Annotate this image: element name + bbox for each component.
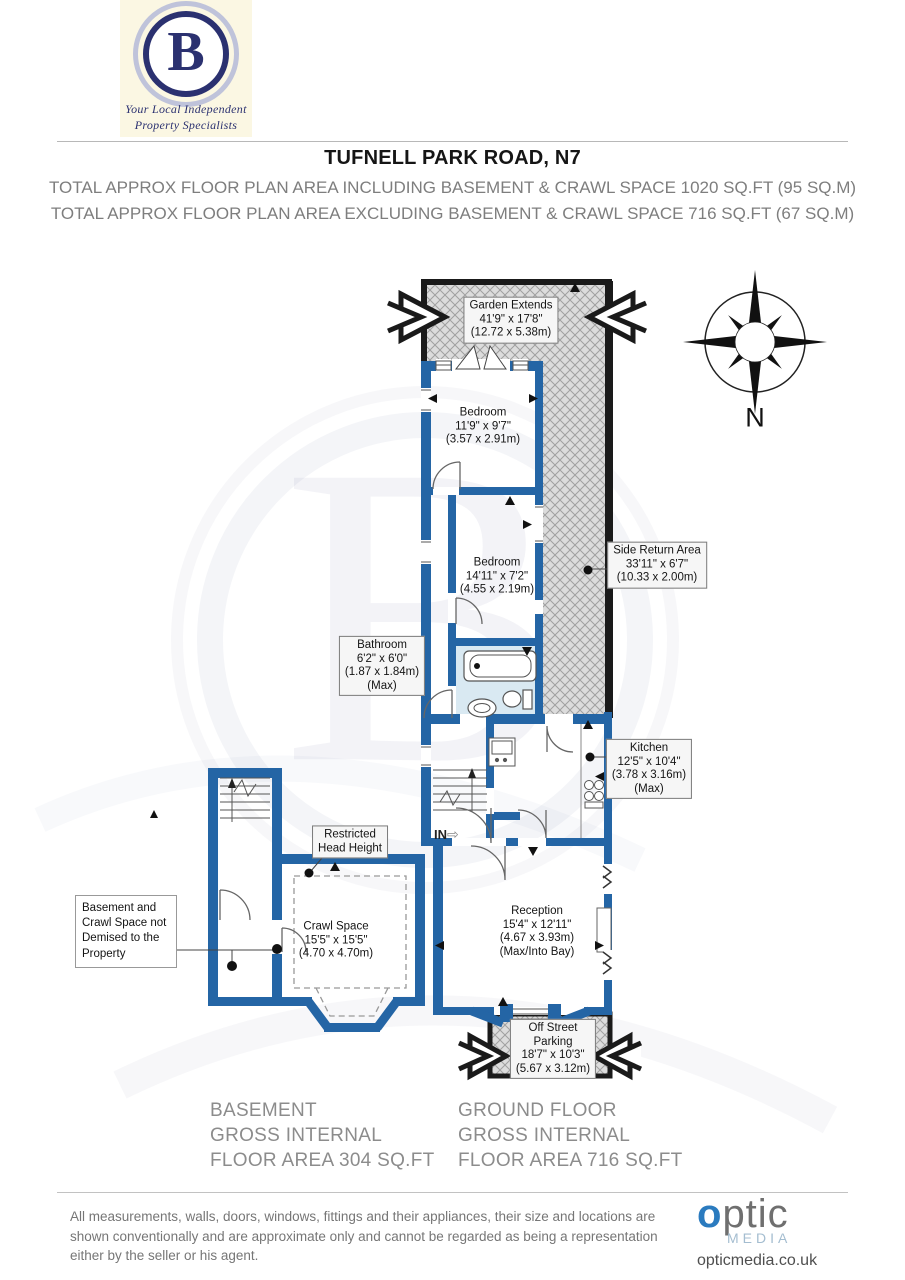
floorplan-page: B B Your Local Independent Property Spec…	[0, 0, 905, 1280]
room-label-side-return: Side Return Area 33'11" x 6'7" (10.33 x …	[607, 542, 707, 589]
room-label-kitchen: Kitchen 12'5" x 10'4" (3.78 x 3.16m) (Ma…	[606, 739, 692, 799]
agency-logo: B Your Local Independent Property Specia…	[120, 0, 252, 137]
label-basement-note: Basement and Crawl Space not Demised to …	[75, 895, 177, 968]
room-label-reception: Reception 15'4" x 12'11" (4.67 x 3.93m) …	[500, 905, 575, 959]
brand-media-label: MEDIA	[727, 1230, 867, 1246]
brand-name: optic	[697, 1193, 867, 1235]
compass-north-label: N	[745, 403, 765, 434]
room-label-garden: Garden Extends 41'9" x 17'8" (12.72 x 5.…	[463, 297, 558, 344]
entrance-text: IN	[434, 827, 447, 842]
entrance-label: IN⇨	[434, 826, 459, 843]
room-label-crawl-space: Crawl Space 15'5" x 15'5" (4.70 x 4.70m)	[299, 921, 373, 962]
entrance-arrow-icon: ⇨	[447, 826, 459, 842]
logo-tagline-line1: Your Local Independent	[120, 102, 252, 117]
basement-summary: BASEMENT GROSS INTERNAL FLOOR AREA 304 S…	[210, 1098, 435, 1173]
room-label-parking: Off Street Parking 18'7" x 10'3" (5.67 x…	[510, 1019, 596, 1079]
brand-o-icon: o	[697, 1192, 722, 1236]
page-title: TUFNELL PARK ROAD, N7	[0, 147, 905, 170]
total-area-excluding: TOTAL APPROX FLOOR PLAN AREA EXCLUDING B…	[0, 204, 905, 224]
brand-website: opticmedia.co.uk	[697, 1252, 867, 1270]
optic-media-logo: optic MEDIA opticmedia.co.uk	[697, 1193, 867, 1270]
room-label-bedroom-rear: Bedroom 11'9" x 9'7" (3.57 x 2.91m)	[446, 407, 520, 448]
ground-floor-summary: GROUND FLOOR GROSS INTERNAL FLOOR AREA 7…	[458, 1098, 683, 1173]
label-restricted-head-height: Restricted Head Height	[312, 825, 388, 858]
total-area-including: TOTAL APPROX FLOOR PLAN AREA INCLUDING B…	[0, 178, 905, 198]
disclaimer-text: All measurements, walls, doors, windows,…	[70, 1207, 670, 1266]
header-divider	[57, 141, 848, 142]
room-label-bedroom-middle: Bedroom 14'11" x 7'2" (4.55 x 2.19m)	[460, 557, 534, 598]
room-label-bathroom: Bathroom 6'2" x 6'0" (1.87 x 1.84m) (Max…	[339, 636, 425, 696]
logo-letter: B	[167, 20, 204, 84]
logo-tagline-line2: Property Specialists	[120, 118, 252, 133]
